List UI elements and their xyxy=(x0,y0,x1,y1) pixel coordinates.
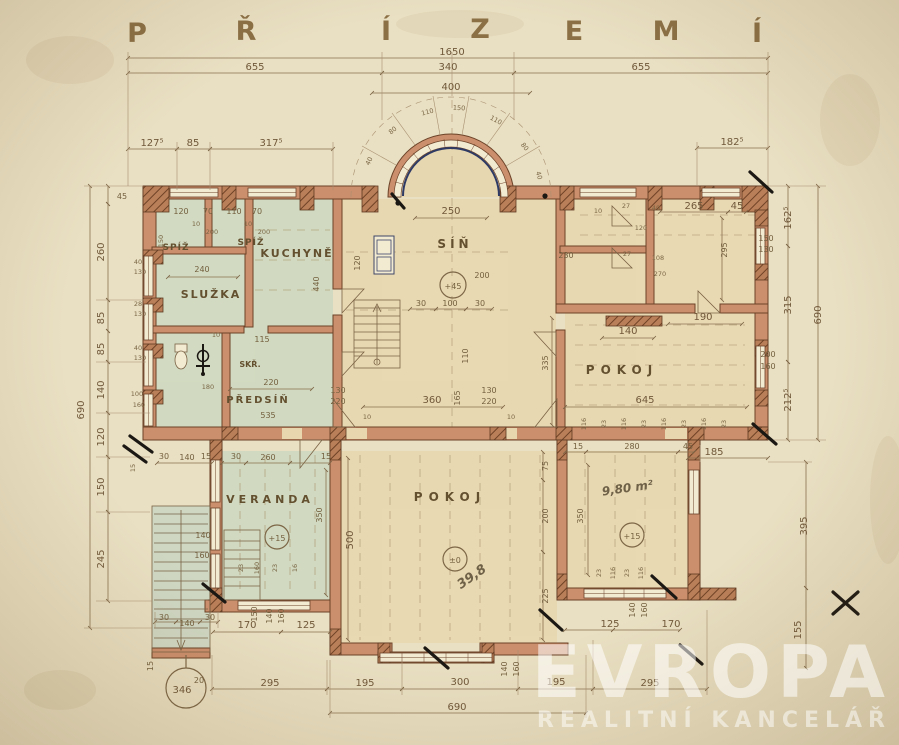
floor-plan-drawing: +45 +15 +15 ±0 346 20 1650655 340400 655… xyxy=(0,0,899,745)
scanned-floorplan-page: +45 +15 +15 ±0 346 20 1650655 340400 655… xyxy=(0,0,899,745)
vignette xyxy=(0,0,899,745)
